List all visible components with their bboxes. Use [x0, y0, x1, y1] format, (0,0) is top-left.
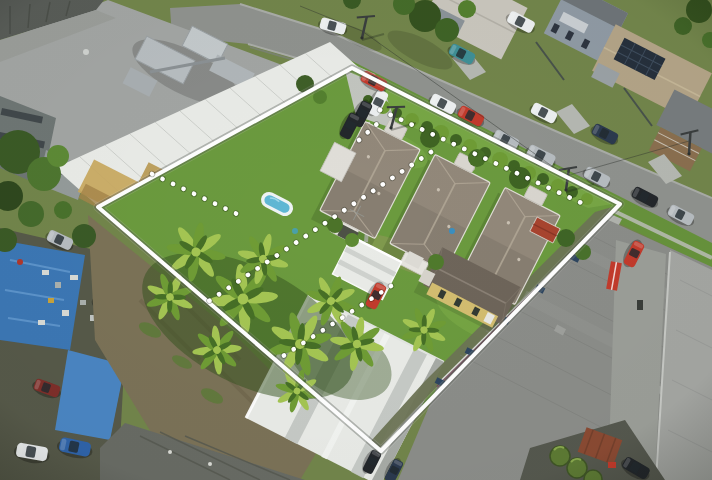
- photo-vignette: [0, 0, 712, 480]
- aerial-photo-canvas: [0, 0, 712, 480]
- aerial-photo: [0, 0, 712, 480]
